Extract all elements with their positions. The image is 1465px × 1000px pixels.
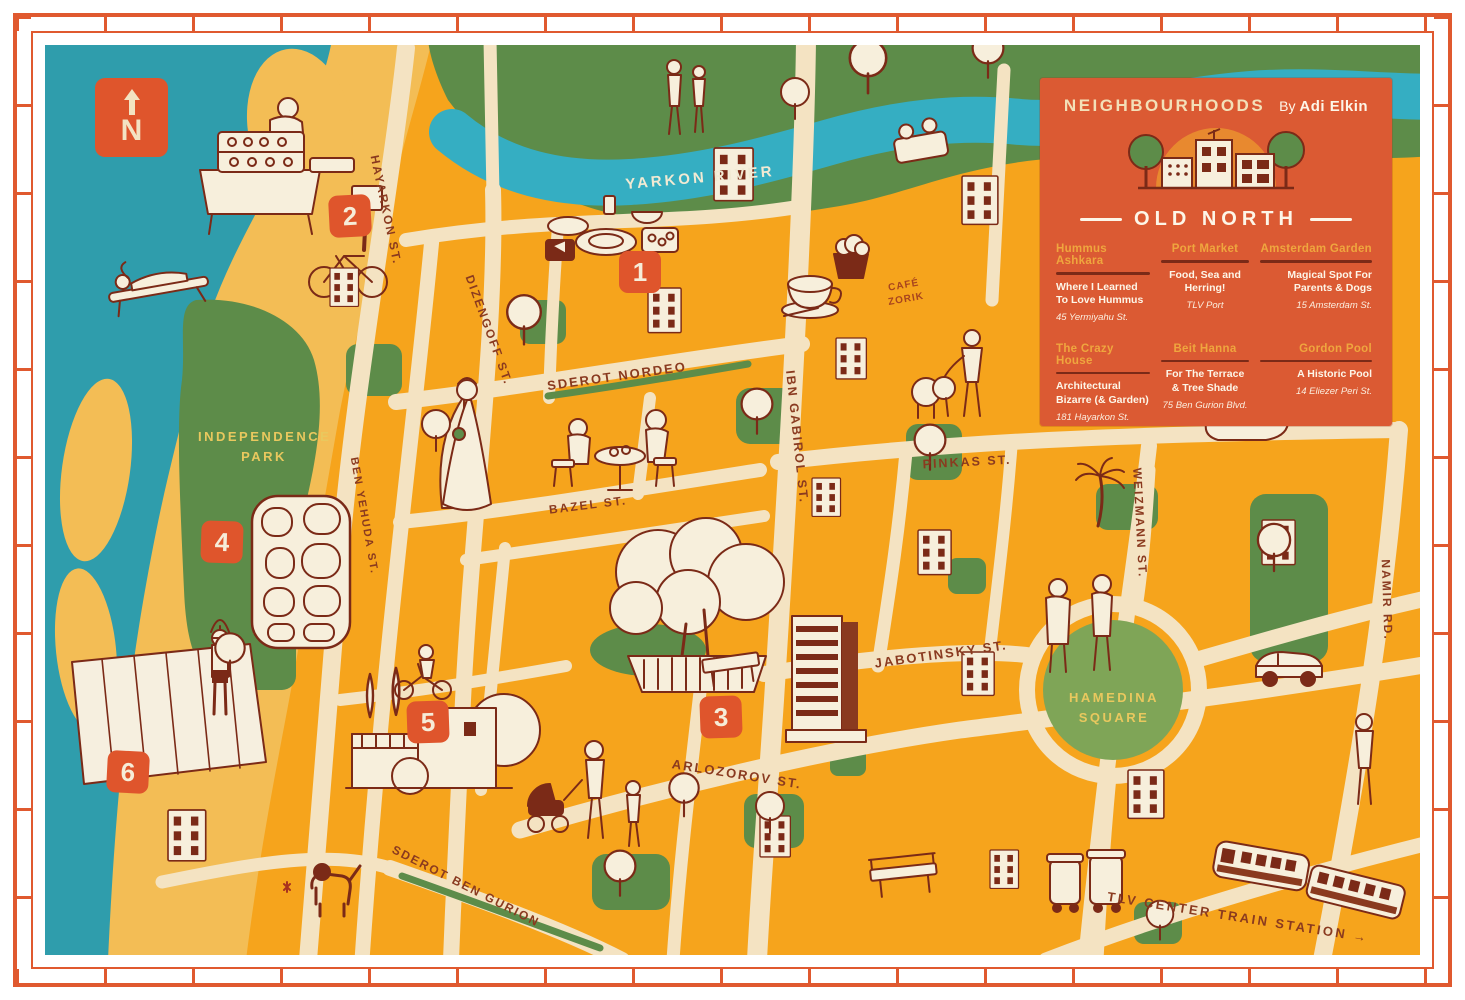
legend-entry-port-market: Port Market Food, Sea and Herring! TLV P… [1161, 243, 1249, 323]
entry-name: The Crazy House [1056, 343, 1150, 367]
legend-entry-gordon-pool: Gordon Pool A Historic Pool 14 Eliezer P… [1260, 343, 1372, 423]
entry-desc: Where I Learned To Love Hummus [1056, 281, 1150, 308]
crazy-house-illustration [252, 496, 350, 648]
entry-name: Gordon Pool [1260, 343, 1372, 355]
legend-entry-beit-hanna: Beit Hanna For The Terrace & Tree Shade … [1161, 343, 1249, 423]
marker-number: 2 [342, 200, 358, 232]
entry-address: 15 Amsterdam St. [1260, 300, 1372, 311]
subtitle-dash [1310, 218, 1352, 221]
frame-margin-top [0, 0, 1465, 45]
legend-entry-hummus-ashkara: Hummus Ashkara Where I Learned To Love H… [1056, 243, 1150, 323]
map-marker-3: 3 [699, 695, 742, 738]
entry-rule [1260, 360, 1372, 363]
entry-address: 181 Hayarkon St. [1056, 412, 1150, 423]
label-namir-rd: NAMIR RD. [1379, 559, 1396, 641]
neighbourhood-name: OLD NORTH [1056, 208, 1376, 231]
entry-desc: Food, Sea and Herring! [1161, 269, 1249, 296]
entry-desc: Magical Spot For Parents & Dogs [1260, 269, 1372, 296]
series-title: NEIGHBOURHOODS [1064, 96, 1265, 116]
entry-address: 14 Eliezer Peri St. [1260, 386, 1372, 397]
neighbourhood-illustration [1056, 122, 1376, 206]
entry-rule [1161, 260, 1249, 263]
label-hamedina-square: HAMEDINA SQUARE [1058, 688, 1170, 728]
entry-rule [1260, 260, 1372, 263]
entry-rule [1056, 372, 1150, 375]
legend-entry-amsterdam-garden: Amsterdam Garden Magical Spot For Parent… [1260, 243, 1372, 323]
map-marker-2: 2 [328, 194, 372, 238]
frame-margin-bottom [0, 955, 1465, 1000]
map-marker-1: 1 [619, 251, 661, 293]
marker-number: 6 [120, 756, 136, 788]
neighbourhood-title-text: OLD NORTH [1134, 208, 1298, 231]
subtitle-dash [1080, 218, 1122, 221]
entry-address: TLV Port [1161, 300, 1249, 311]
entry-desc: For The Terrace & Tree Shade [1161, 368, 1249, 395]
frame-margin-right [1420, 45, 1465, 955]
entry-desc: A Historic Pool [1260, 368, 1372, 382]
north-arrow-icon [120, 89, 144, 115]
byline-prefix: By [1279, 98, 1295, 114]
marker-number: 5 [420, 706, 436, 737]
north-compass: N [95, 78, 168, 157]
entry-rule [1161, 360, 1249, 363]
legend-entry-crazy-house: The Crazy House Architectural Bizarre (&… [1056, 343, 1150, 423]
legend-panel: NEIGHBOURHOODS By Adi Elkin [1040, 78, 1392, 426]
byline: By Adi Elkin [1279, 98, 1368, 115]
label-independence-park: INDEPENDENCE PARK [198, 427, 330, 467]
frame-margin-left [0, 45, 45, 955]
entry-address: 45 Yermiyahu St. [1056, 312, 1150, 323]
entry-desc: Architectural Bizarre (& Garden) [1056, 380, 1150, 407]
entry-rule [1056, 272, 1150, 275]
entry-name: Port Market [1161, 243, 1249, 255]
map-marker-5: 5 [406, 700, 449, 743]
entry-address: 75 Ben Gurion Blvd. [1161, 400, 1249, 411]
marker-number: 1 [633, 257, 647, 288]
map-marker-6: 6 [106, 750, 150, 794]
tower-illustration [786, 616, 866, 742]
marker-number: 3 [713, 701, 729, 732]
entry-name: Beit Hanna [1161, 343, 1249, 355]
author-name: Adi Elkin [1299, 98, 1368, 115]
entry-name: Hummus Ashkara [1056, 243, 1150, 267]
entry-name: Amsterdam Garden [1260, 243, 1372, 255]
north-letter: N [121, 116, 143, 146]
legend-entries: Hummus Ashkara Where I Learned To Love H… [1056, 243, 1376, 423]
map-marker-4: 4 [200, 520, 243, 563]
illustrated-map-poster: YARKON RIVER HAYARKON ST. BEN YEHUDA ST.… [0, 0, 1465, 1000]
marker-number: 4 [214, 526, 230, 557]
